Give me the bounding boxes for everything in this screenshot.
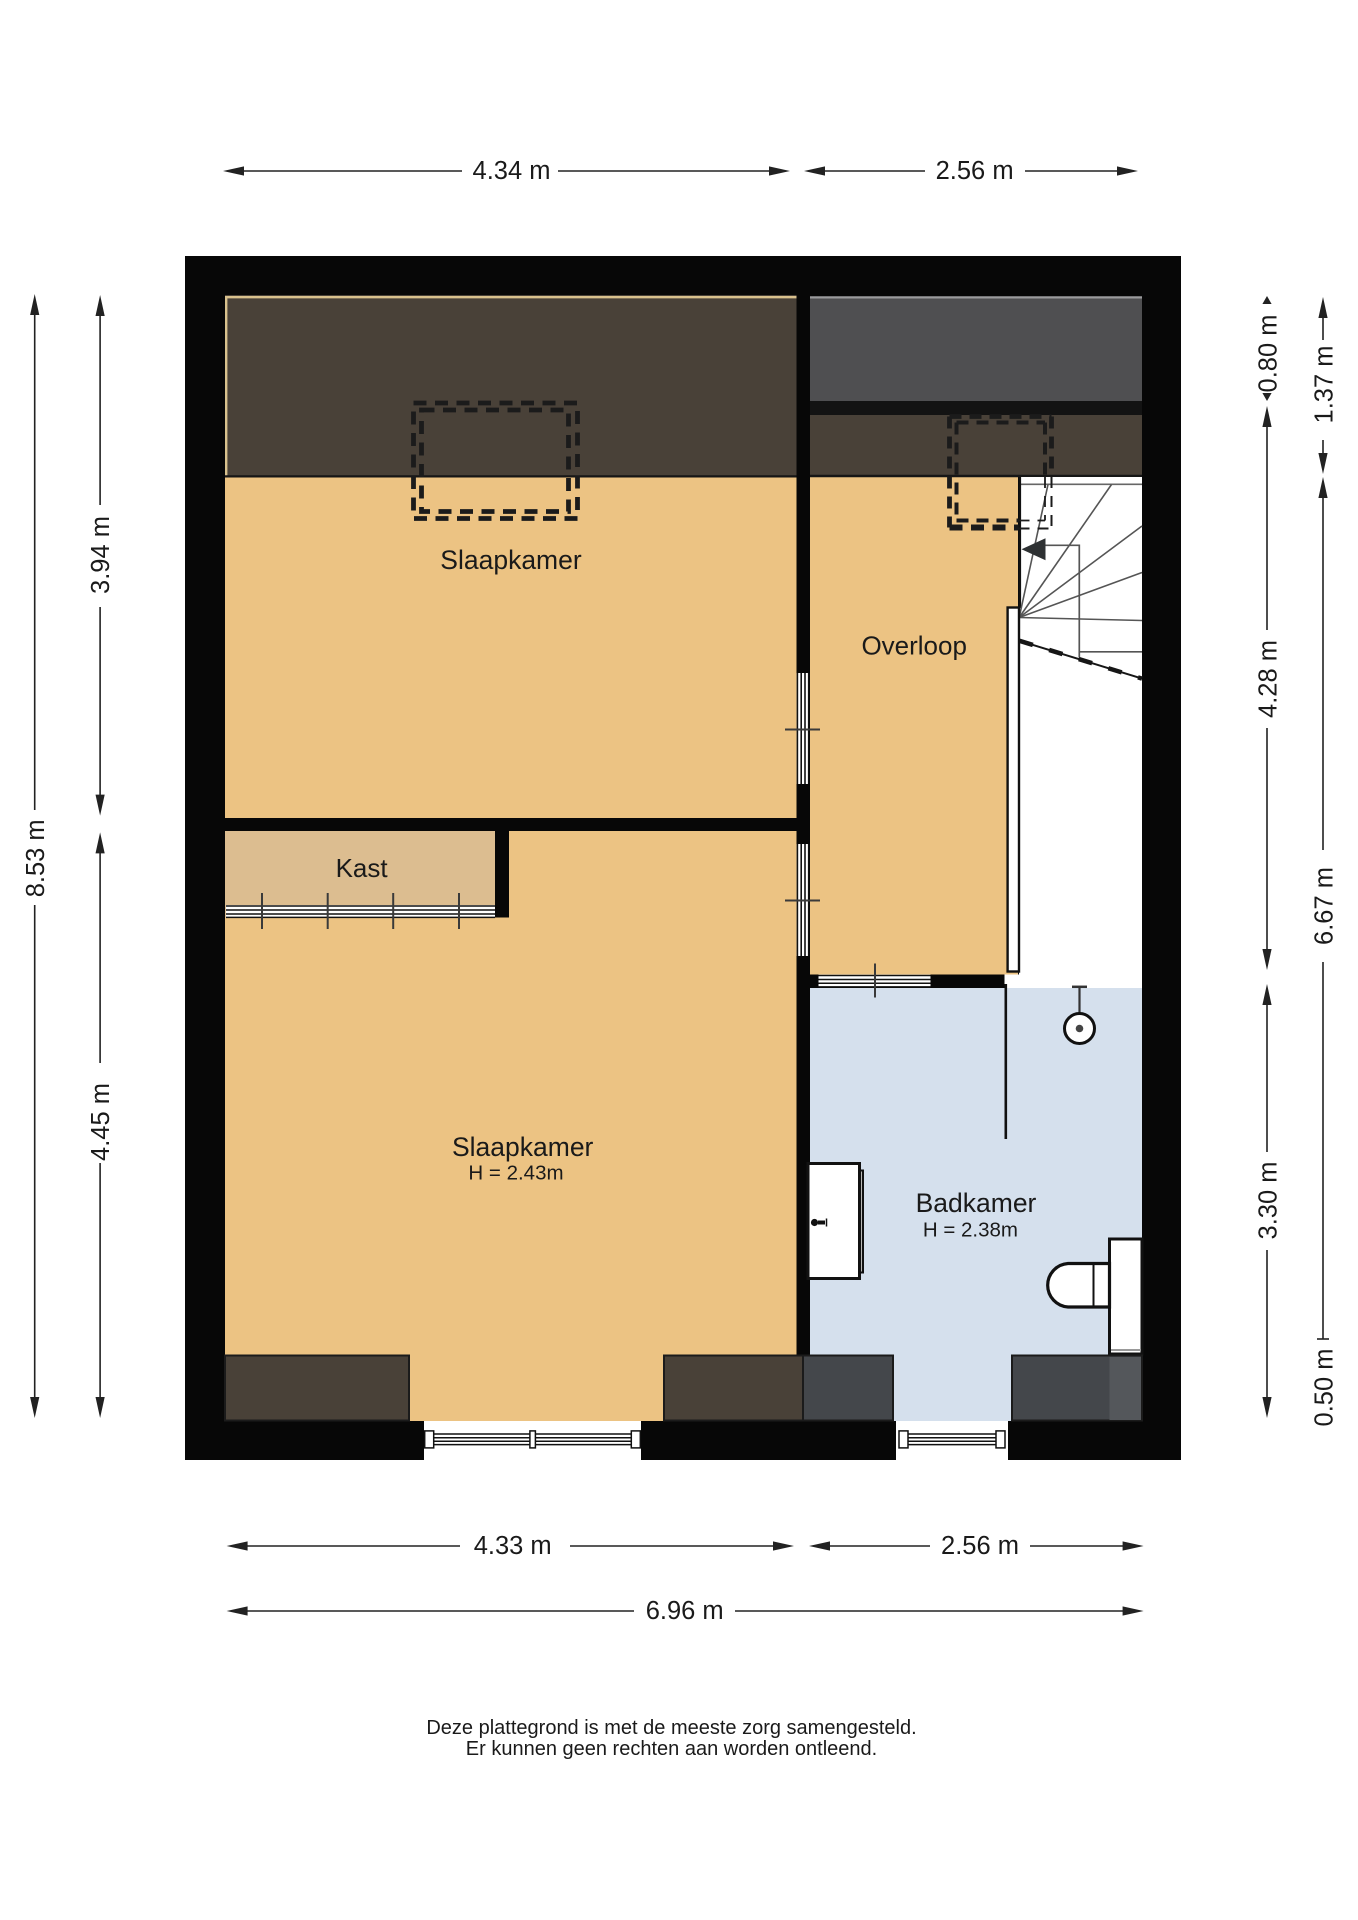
svg-text:Kast: Kast	[336, 853, 389, 883]
svg-text:6.96 m: 6.96 m	[646, 1597, 724, 1625]
svg-text:4.45 m: 4.45 m	[87, 1083, 115, 1161]
svg-text:6.67 m: 6.67 m	[1311, 867, 1339, 945]
svg-text:4.28 m: 4.28 m	[1255, 640, 1283, 718]
svg-text:2.56 m: 2.56 m	[941, 1532, 1019, 1560]
svg-text:0.80 m: 0.80 m	[1255, 315, 1283, 393]
svg-text:4.34 m: 4.34 m	[473, 157, 551, 185]
svg-text:2.56 m: 2.56 m	[936, 157, 1014, 185]
svg-text:Overloop: Overloop	[861, 631, 967, 661]
svg-text:Badkamer: Badkamer	[916, 1188, 1037, 1218]
svg-text:H = 2.38m: H = 2.38m	[923, 1219, 1018, 1242]
svg-text:3.30 m: 3.30 m	[1255, 1162, 1283, 1240]
svg-text:Slaapkamer: Slaapkamer	[440, 545, 582, 575]
svg-text:4.33 m: 4.33 m	[474, 1532, 552, 1560]
svg-text:H = 2.43m: H = 2.43m	[468, 1162, 563, 1185]
svg-text:8.53 m: 8.53 m	[22, 819, 50, 897]
svg-text:Er kunnen geen rechten aan wor: Er kunnen geen rechten aan worden ontlee…	[466, 1738, 877, 1760]
svg-text:3.94 m: 3.94 m	[87, 516, 115, 594]
svg-text:Slaapkamer: Slaapkamer	[452, 1132, 594, 1162]
svg-text:1.37 m: 1.37 m	[1311, 346, 1339, 424]
svg-text:Deze plattegrond is met de mee: Deze plattegrond is met de meeste zorg s…	[426, 1717, 916, 1739]
svg-text:0.50 m: 0.50 m	[1311, 1349, 1339, 1427]
